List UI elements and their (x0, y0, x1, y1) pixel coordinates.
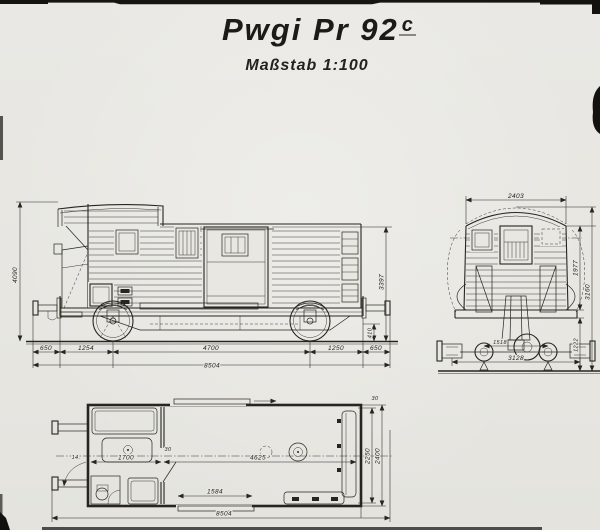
dim-plan-wall-top: 30 (372, 396, 379, 402)
end-corner-window-right (540, 227, 562, 246)
cab-window (114, 228, 140, 256)
dim-end-wall-height: 1977 (573, 260, 580, 276)
end-window (498, 224, 534, 266)
drawing-title: Pwgi Pr 92c (222, 12, 415, 47)
dim-side-height-left: 4090 (12, 267, 19, 283)
dim-plan-partition: 30 (165, 447, 172, 453)
rail-line (26, 342, 398, 345)
dim-side-axle-right: 1250 (328, 345, 344, 352)
dim-plan-door-opening: 1584 (207, 489, 223, 496)
bench-right-wall (342, 411, 356, 497)
rail-sections (480, 362, 552, 370)
scale-label: Maßstab 1:100 (245, 57, 368, 74)
plan-buffers (52, 421, 88, 490)
scan-corner-top-right (592, 0, 600, 14)
plan-view: 14. 1700 30 4625 1584 8504 2250 2400 30 (52, 396, 392, 522)
drawing-canvas: Pwgi Pr 92c Maßstab 1:100 (0, 0, 600, 530)
title-main: Pwgi Pr 92 (222, 12, 399, 47)
wc-cell (91, 476, 120, 504)
scan-edge-top-left (0, 0, 48, 4)
end-buffer-left (437, 341, 462, 361)
dim-plan-inner-width: 2250 (365, 448, 372, 465)
plan-door-label: 14. (72, 455, 81, 461)
dim-end-overall-width: 3128 (508, 355, 524, 362)
scan-corner-bottom-left (0, 512, 10, 530)
dim-end-rail-gauge: 1518 (493, 340, 507, 346)
lower-window (88, 282, 114, 308)
dim-plan-luggage-room: 4625 (250, 455, 266, 462)
dim-end-roof-width: 2403 (507, 193, 524, 200)
title-block: Pwgi Pr 92c Maßstab 1:100 (222, 12, 416, 74)
end-steps (457, 266, 575, 350)
bench-bottom (128, 478, 158, 504)
scan-blob-right (593, 86, 600, 134)
scanned-drawing-page: Pwgi Pr 92c Maßstab 1:100 (0, 0, 600, 530)
end-running-gear (460, 334, 572, 370)
barred-window (174, 226, 200, 260)
louvre-panel (340, 230, 360, 304)
bench-top (92, 408, 157, 434)
end-platform (54, 244, 88, 317)
side-elevation-view: 650 1254 4700 1250 650 8504 4090 3397 41… (12, 202, 398, 369)
toilet (96, 488, 108, 500)
dim-side-overhang-left: 650 (40, 345, 52, 352)
title-superscript: c (402, 14, 415, 36)
scan-edge-top (0, 0, 600, 4)
dim-end-frame-height: 1222 (574, 338, 580, 352)
dim-plan-outer-width: 2400 (375, 448, 382, 465)
wheel-right (290, 301, 330, 341)
dim-side-total-length: 8504 (204, 362, 220, 369)
entry-door-swing: 14. (64, 455, 86, 486)
dim-side-overhang-right: 650 (370, 345, 382, 352)
dim-plan-compartment: 1700 (118, 455, 134, 462)
dim-side-buffer-height: 410 (368, 327, 374, 338)
partition-door-leaf (163, 462, 176, 482)
sliding-door (200, 225, 274, 309)
dim-side-height-right: 3397 (379, 274, 386, 290)
dim-side-wheelbase: 4700 (203, 345, 219, 352)
scan-mark-left (0, 116, 3, 160)
lamp-bracket (54, 244, 62, 254)
luggage-room (260, 411, 356, 504)
end-corner-window-left (470, 228, 494, 252)
plan-partition (161, 407, 176, 504)
end-view: 2403 1977 3160 1222 1518 3128 (437, 193, 600, 374)
buffer-left (33, 298, 61, 320)
dim-side-axle-left: 1254 (78, 345, 94, 352)
dim-end-overall-height: 3160 (585, 284, 592, 300)
scan-edge-top-right (540, 0, 600, 5)
end-underframe (455, 310, 577, 318)
dim-plan-total-length: 8504 (216, 511, 232, 518)
